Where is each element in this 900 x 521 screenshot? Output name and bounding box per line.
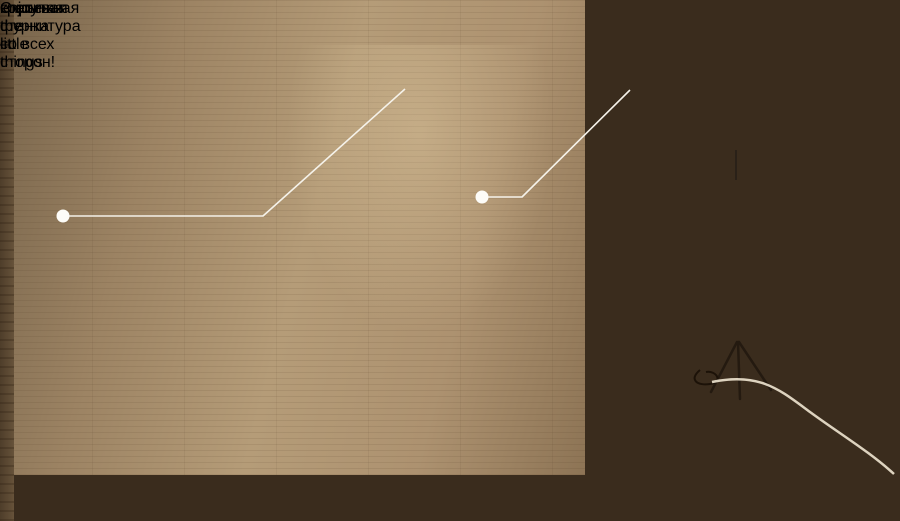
hidden-fitting-callouts	[0, 0, 900, 521]
headline-line-2: красивая стенка со всех сторон!	[0, 0, 68, 72]
callout-dot-tall-cabinet	[476, 191, 489, 204]
showroom-photo: enjoy the little things	[0, 0, 900, 521]
callout-line-tall-cabinet	[482, 90, 630, 197]
callout-dot-left-cabinet	[57, 210, 70, 223]
callout-line-left-cabinet	[63, 89, 405, 216]
